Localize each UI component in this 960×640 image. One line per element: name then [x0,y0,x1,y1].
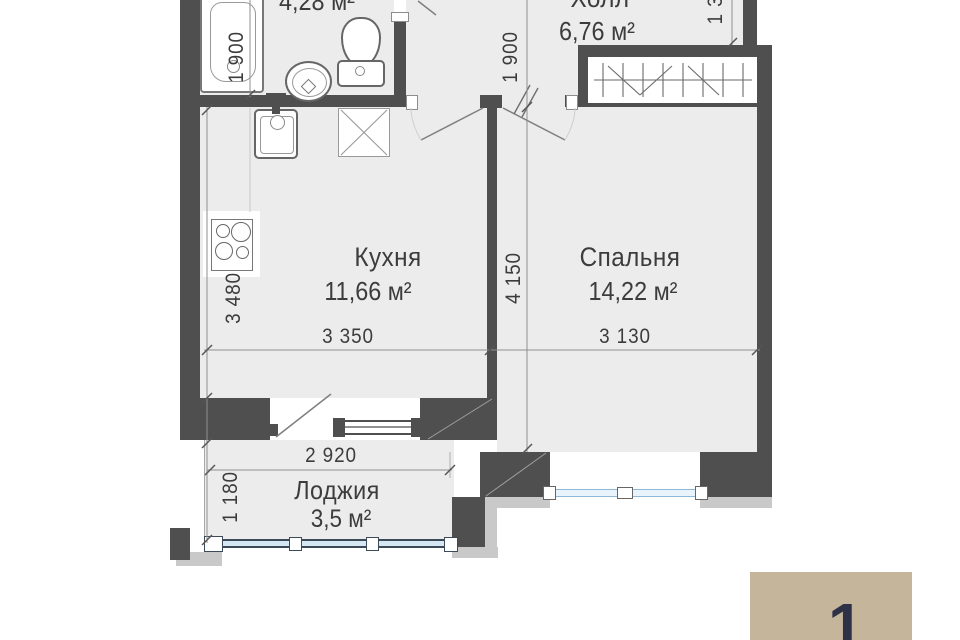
wall-loggia-left-corner [170,528,190,560]
balcony-window [338,420,418,435]
bedroom-window-cap-left [543,486,556,500]
room-count-number: 1 [828,594,864,640]
bedroom-window-mullion [617,487,633,499]
room-area-bedroom: 14,22 м² [589,276,678,307]
loggia-glazing-mullion-1 [289,537,302,551]
room-area-loggia: 3,5 м² [311,505,371,534]
wall-bedroom-bottom-left [480,452,550,497]
exterior-band-bedroom-right [700,497,772,508]
dim-bedroom-width: 3 130 [599,325,651,349]
kitchen-faucet-stem [272,97,280,114]
dim-kitchen-height: 3 480 [222,272,246,324]
bedroom-door-cap [566,95,578,110]
washing-machine-spot [338,108,390,157]
wardrobe-frame-bottom [578,103,760,107]
balcony-window-post-right [411,418,423,437]
room-label-kitchen: Кухня [354,242,421,273]
wall-right-outer [757,47,772,497]
room-area-kitchen: 11,66 м² [324,276,411,307]
wall-balcony-right-block [420,398,497,440]
kitchen-faucet-bar [266,93,286,99]
wall-balcony-left-block [180,398,270,440]
wall-bedroom-bottom-right [700,452,772,497]
exterior-band-loggia-right [452,547,498,558]
floor-plan: 4,28 м² Холл 6,76 м² Кухня 11,66 м² Спал… [0,0,960,640]
room-label-loggia: Лоджия [294,475,380,506]
burner-4 [236,246,249,259]
loggia-glazing-mullion-2 [366,537,379,551]
room-count-badge: 1 [750,572,912,640]
burner-1 [216,224,230,238]
bedroom-window-cap-right [695,486,708,500]
burner-3 [215,242,233,260]
bathroom-door-cap [391,12,409,22]
wall-left-outer [180,0,200,398]
dim-hall-height: 1 900 [499,31,523,83]
dim-bathroom-height: 1 900 [225,31,249,83]
loggia-glazing-cap-left [204,536,223,552]
balcony-door-hinge [269,424,278,436]
room-area-bathroom: 4,28 м² [279,0,355,17]
toilet-button [355,66,365,76]
kitchen-door-cap [406,95,418,110]
kitchen-sink [254,109,298,159]
dim-loggia-height: 1 180 [219,471,243,523]
wardrobe [588,57,757,103]
balcony-window-post-left [333,418,345,437]
room-label-hall: Холл [570,0,629,14]
wall-bathroom-right [394,18,406,100]
loggia-glazing [204,539,455,548]
wall-hall-top-right [743,0,757,47]
washbasin [285,61,332,102]
burner-2 [231,222,251,242]
dim-loggia-width: 2 920 [305,444,357,468]
exterior-band-bedroom-left [483,497,550,508]
room-area-hall: 6,76 м² [559,16,635,47]
loggia-glazing-cap-right [444,537,458,552]
dim-top-right-partial: 1 3 [704,0,728,24]
kitchen-sink-drain [270,115,285,130]
stove [211,219,253,271]
dim-bedroom-height: 4 150 [502,252,526,304]
dim-kitchen-width: 3 350 [322,325,374,349]
room-label-bedroom: Спальня [580,242,681,273]
wall-kitchen-bedroom-divider [487,107,497,398]
hall-floor-lower [406,0,578,107]
wardrobe-frame-left [578,45,588,107]
